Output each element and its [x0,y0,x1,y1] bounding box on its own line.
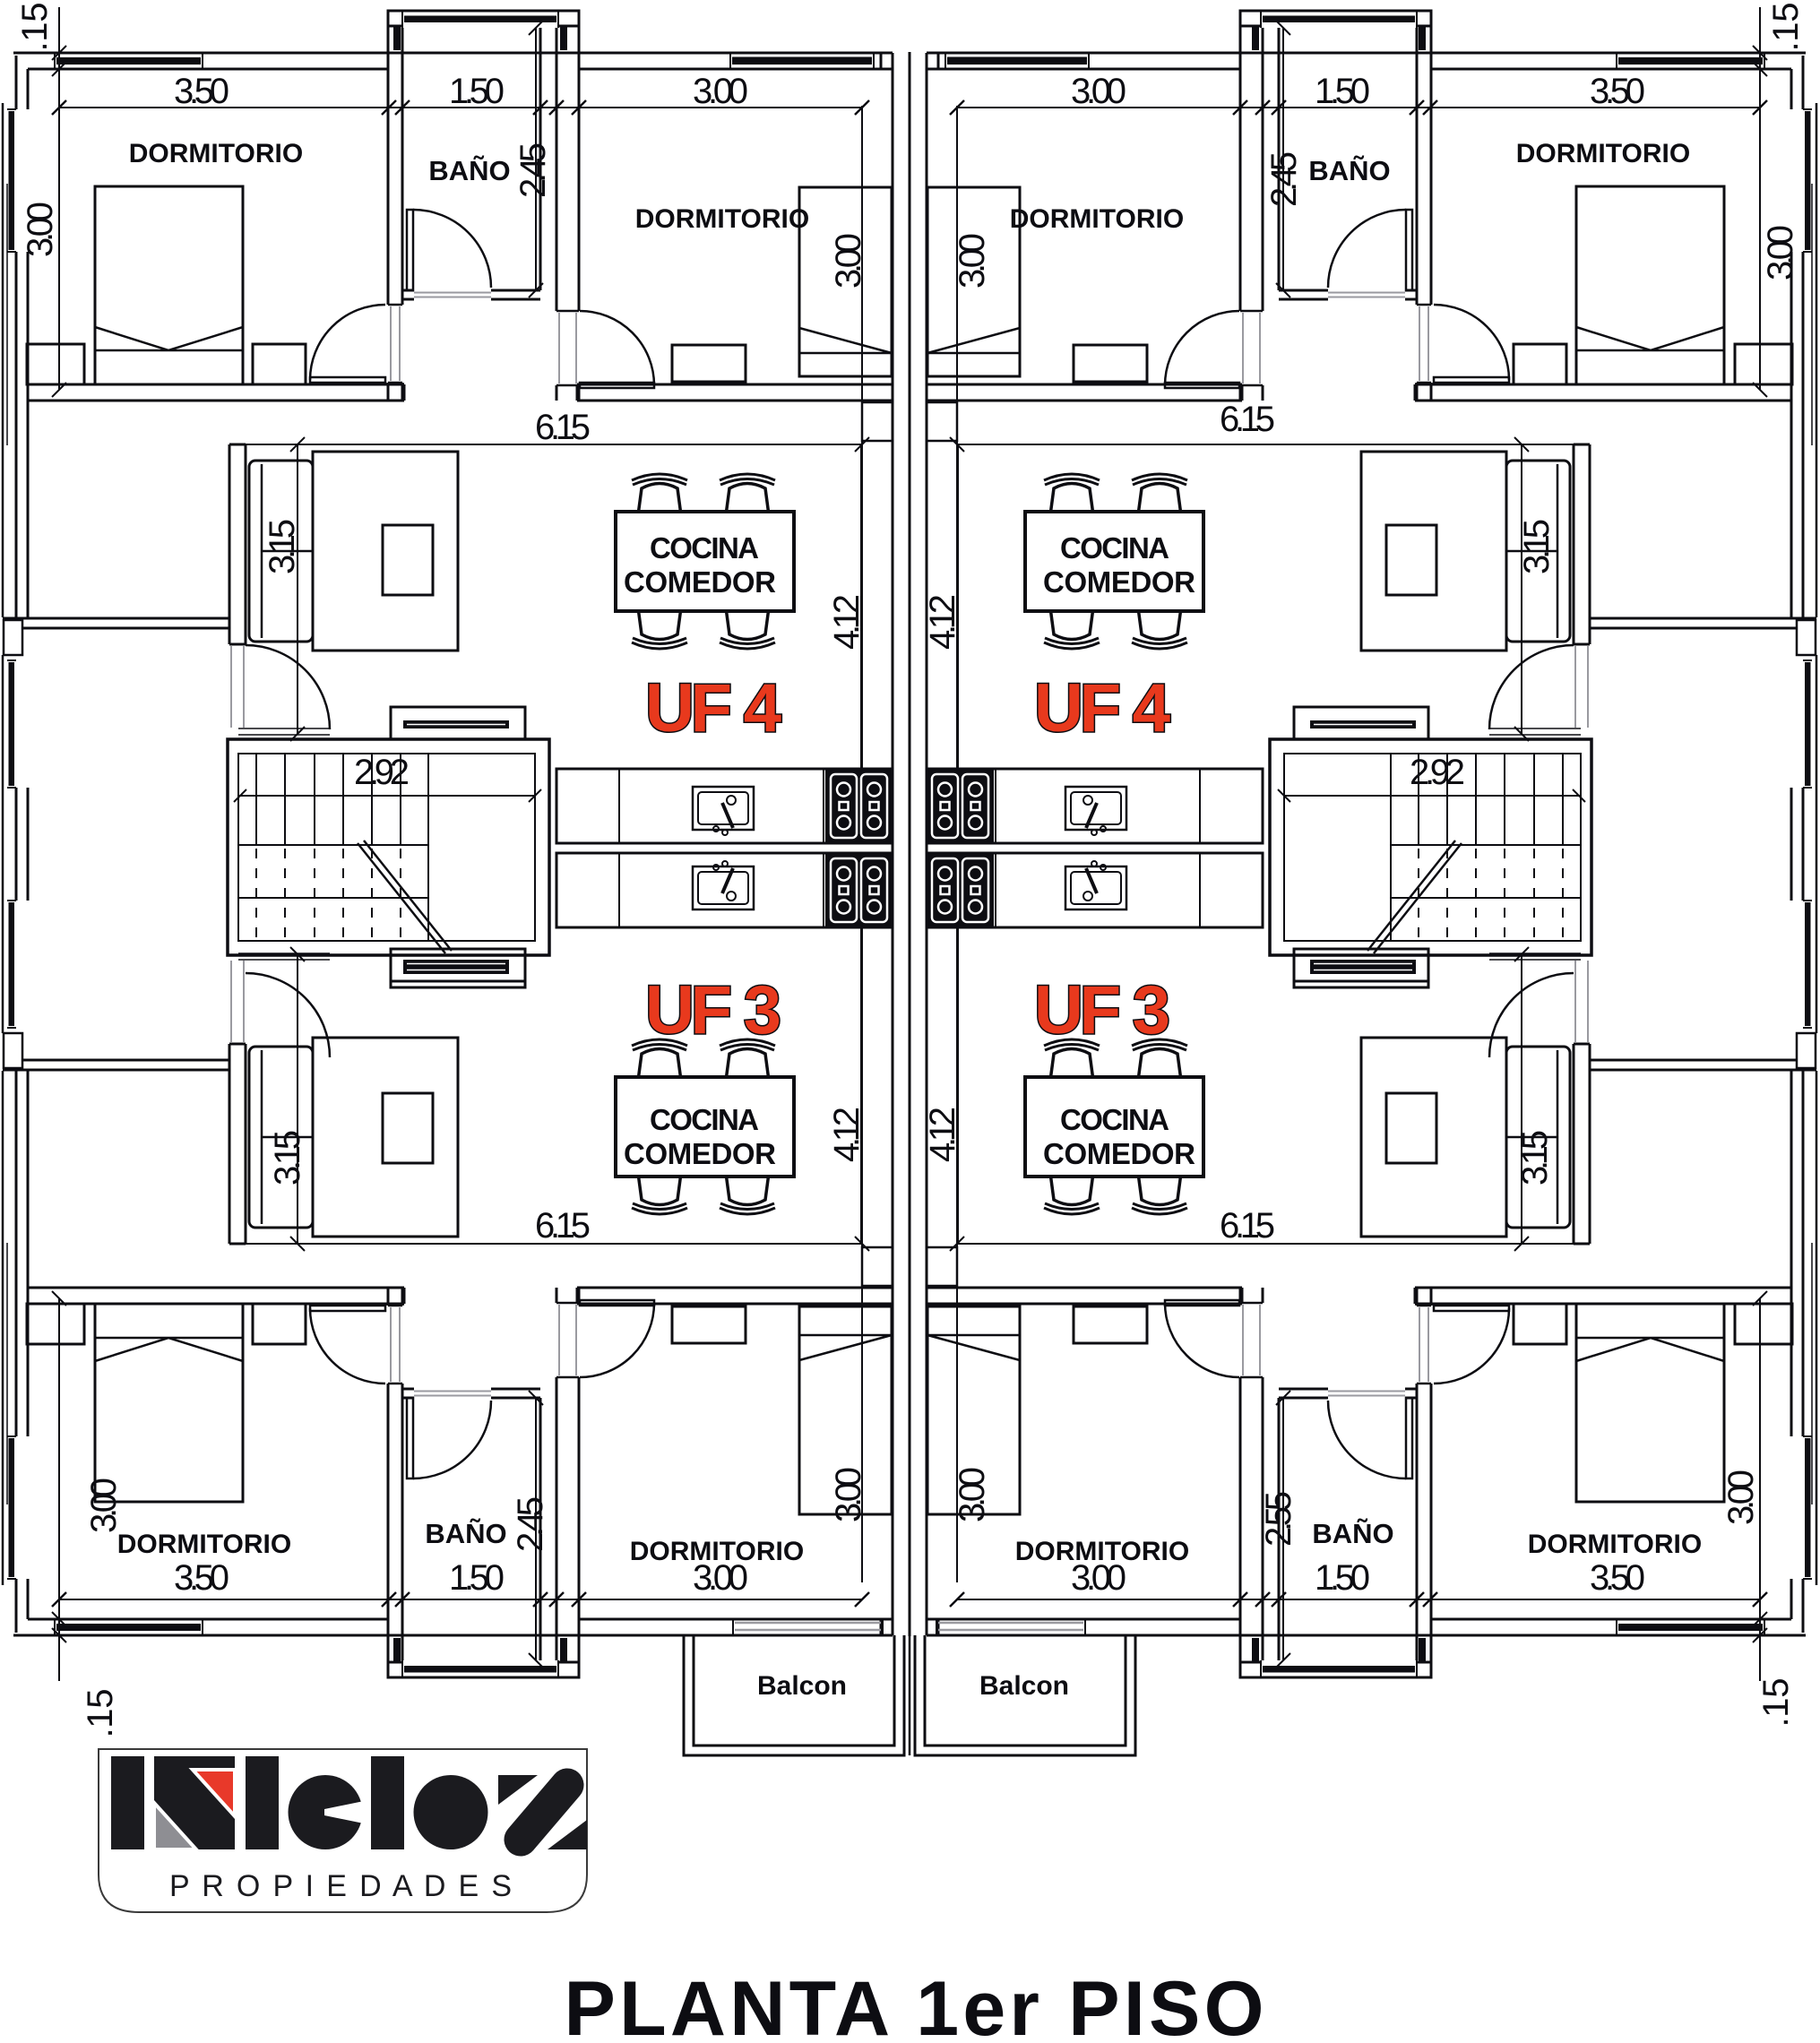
svg-text:3.00: 3.00 [1071,1558,1126,1598]
svg-text:4.12: 4.12 [923,594,962,650]
svg-text:6.15: 6.15 [1220,1206,1275,1246]
svg-text:4.12: 4.12 [827,594,867,650]
svg-text:3.50: 3.50 [1590,72,1645,111]
svg-text:DORMITORIO: DORMITORIO [1528,1530,1702,1559]
svg-text:3.00: 3.00 [1761,225,1800,280]
svg-text:3.15: 3.15 [1515,1130,1555,1185]
svg-text:3.00: 3.00 [829,1467,868,1522]
svg-text:BAÑO: BAÑO [425,1518,506,1549]
svg-text:P R O P I E D A D E S: P R O P I E D A D E S [169,1869,512,1903]
svg-text:3.00: 3.00 [693,1558,748,1598]
svg-text:3.00: 3.00 [1071,72,1126,111]
svg-text:2.92: 2.92 [1410,753,1465,792]
svg-text:DORMITORIO: DORMITORIO [635,204,809,234]
svg-text:3.00: 3.00 [21,202,60,257]
svg-text:COMEDOR: COMEDOR [1043,565,1195,599]
svg-text:COMEDOR: COMEDOR [1043,1137,1195,1170]
svg-text:COCINA: COCINA [650,531,759,565]
svg-text:.15: .15 [81,1689,120,1738]
svg-text:DORMITORIO: DORMITORIO [1516,139,1690,168]
svg-text:6.15: 6.15 [535,408,591,447]
svg-text:COCINA: COCINA [1060,531,1169,565]
svg-text:BAÑO: BAÑO [428,155,510,186]
svg-text:3.00: 3.00 [829,233,868,289]
svg-text:UF 4: UF 4 [645,670,781,746]
svg-text:.15: .15 [1756,1678,1796,1728]
svg-text:UF 3: UF 3 [1034,972,1170,1048]
svg-text:3.15: 3.15 [263,519,302,574]
svg-text:4.12: 4.12 [827,1107,867,1162]
svg-text:Balcon: Balcon [757,1671,847,1701]
svg-text:COCINA: COCINA [650,1103,759,1136]
svg-text:2.45: 2.45 [511,1496,550,1552]
svg-text:UF 3: UF 3 [645,972,781,1048]
svg-text:1.50: 1.50 [449,72,505,111]
svg-text:3.50: 3.50 [174,1558,229,1598]
svg-text:3.50: 3.50 [174,72,229,111]
svg-text:3.00: 3.00 [953,1467,992,1522]
svg-text:2.45: 2.45 [513,142,553,198]
svg-text:1.50: 1.50 [1315,1558,1370,1598]
svg-text:BAÑO: BAÑO [1312,1518,1393,1549]
svg-text:COMEDOR: COMEDOR [624,565,776,599]
svg-text:DORMITORIO: DORMITORIO [1010,204,1184,234]
svg-text:BAÑO: BAÑO [1308,155,1390,186]
svg-text:6.15: 6.15 [535,1206,591,1246]
svg-text:UF 4: UF 4 [1034,670,1170,746]
svg-text:1.50: 1.50 [1315,72,1370,111]
svg-text:DORMITORIO: DORMITORIO [129,139,303,168]
svg-text:.15: .15 [1766,3,1806,52]
svg-text:2.45: 2.45 [1264,151,1304,207]
svg-text:6.15: 6.15 [1220,400,1275,439]
svg-text:COCINA: COCINA [1060,1103,1169,1136]
svg-text:3.50: 3.50 [1590,1558,1645,1598]
svg-text:1.50: 1.50 [449,1558,505,1598]
svg-text:COMEDOR: COMEDOR [624,1137,776,1170]
svg-text:3.00: 3.00 [84,1478,124,1533]
svg-text:2.92: 2.92 [354,753,410,792]
svg-text:3.00: 3.00 [693,72,748,111]
svg-text:.15: .15 [15,3,55,52]
svg-text:3.00: 3.00 [1721,1470,1761,1525]
svg-text:DORMITORIO: DORMITORIO [117,1530,291,1559]
svg-text:3.15: 3.15 [1517,519,1557,574]
svg-text:Balcon: Balcon [979,1671,1069,1701]
svg-text:3.15: 3.15 [268,1130,307,1185]
svg-text:2.55: 2.55 [1259,1491,1298,1547]
svg-text:3.00: 3.00 [953,233,992,289]
svg-text:4.12: 4.12 [923,1107,962,1162]
